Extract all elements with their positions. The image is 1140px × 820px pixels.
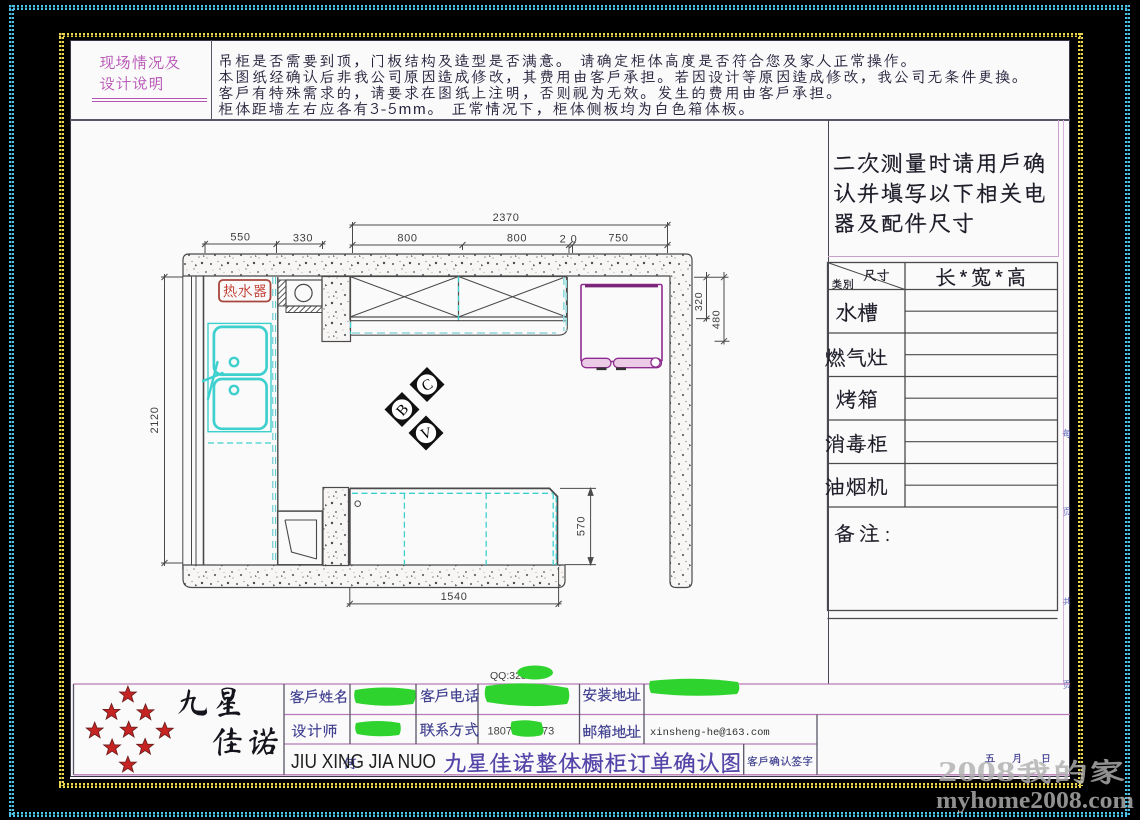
svg-text:73: 73 bbox=[542, 726, 554, 738]
svg-text:客户电话: 客户电话 bbox=[420, 686, 480, 706]
svg-text:联系方式: 联系方式 bbox=[420, 720, 479, 740]
svg-text:1807: 1807 bbox=[488, 726, 512, 738]
svg-text:JIU XING JIA NUO: JIU XING JIA NUO bbox=[291, 751, 436, 773]
svg-text:邮箱地址: 邮箱地址 bbox=[582, 722, 642, 742]
svg-text:九星佳诺整体橱柜订单确认图: 九星佳诺整体橱柜订单确认图 bbox=[443, 747, 742, 778]
svg-text:xinsheng-he@163.com: xinsheng-he@163.com bbox=[650, 727, 770, 739]
svg-text:佳诺: 佳诺 bbox=[211, 724, 283, 757]
svg-text:客户确认签字: 客户确认签字 bbox=[747, 755, 813, 769]
svg-text:客户姓名: 客户姓名 bbox=[289, 687, 348, 707]
svg-text:九星: 九星 bbox=[176, 685, 248, 718]
svg-text:设计师: 设计师 bbox=[291, 721, 338, 741]
svg-text:安装地址: 安装地址 bbox=[582, 685, 642, 705]
